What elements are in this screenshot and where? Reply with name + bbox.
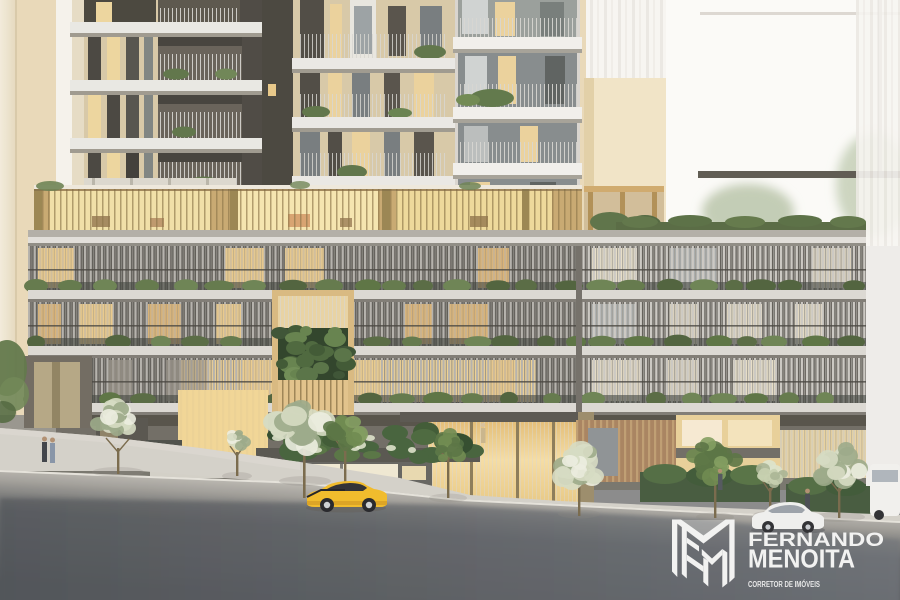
svg-text:MENOITA: MENOITA <box>748 546 855 574</box>
svg-text:CORRETOR DE IMÓVEIS: CORRETOR DE IMÓVEIS <box>748 580 821 589</box>
